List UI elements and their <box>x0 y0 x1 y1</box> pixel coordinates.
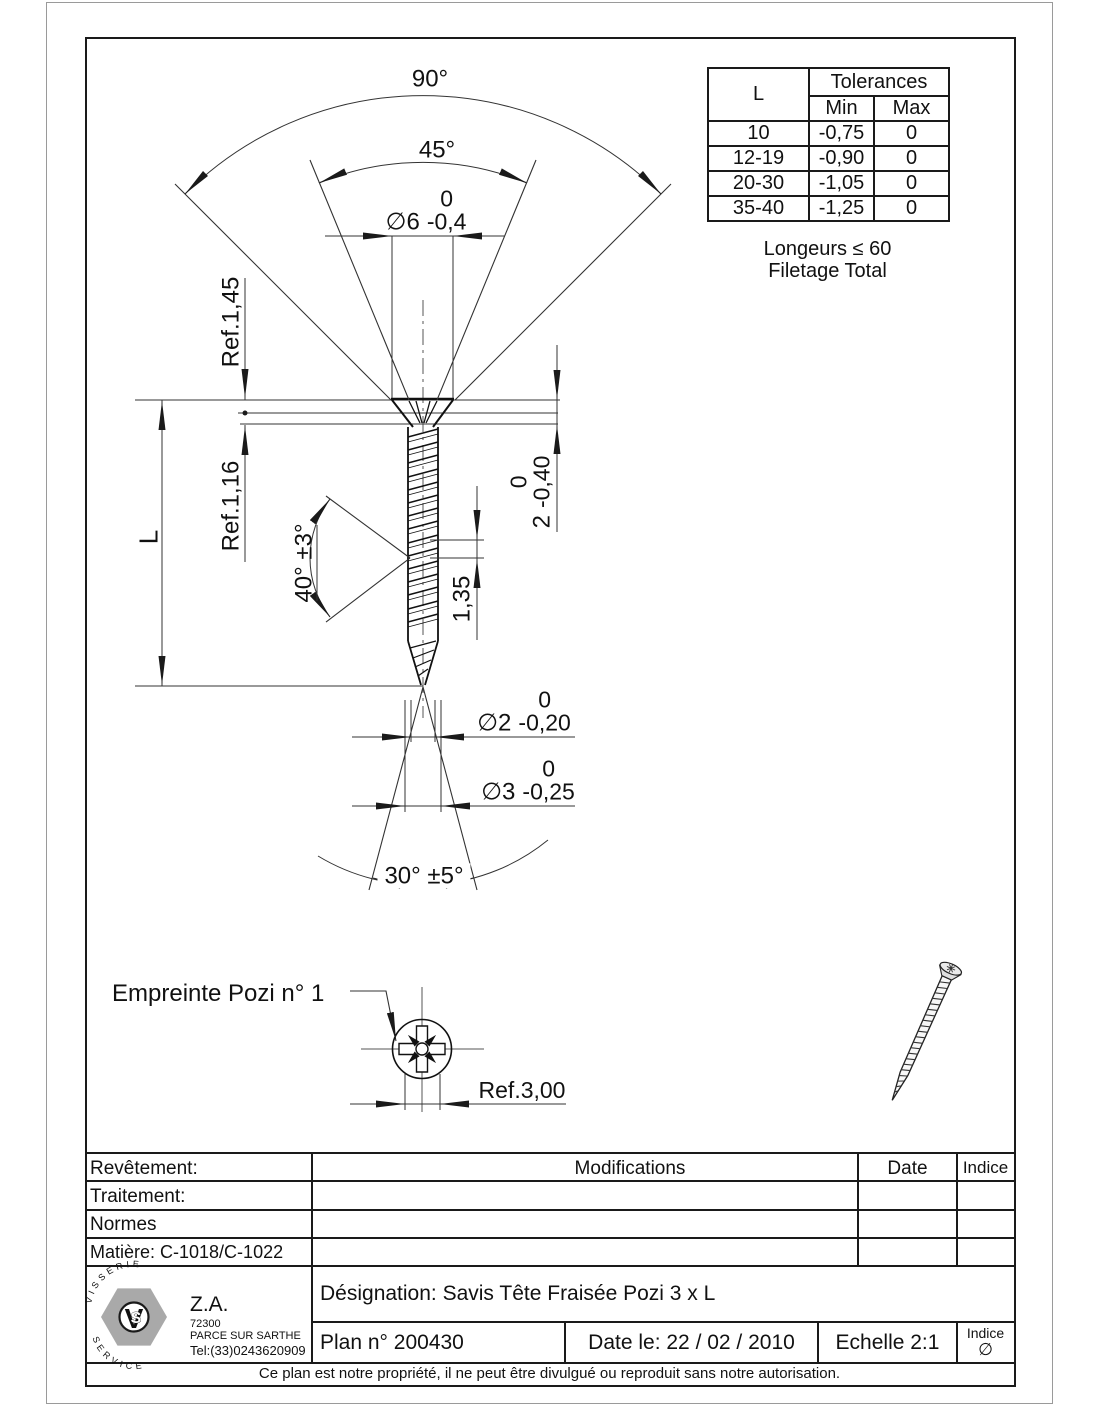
table-row: 20-30 -1,05 0 <box>708 171 949 196</box>
tol-upper: 0 <box>542 758 555 781</box>
field-indice-value: ∅ <box>957 1340 1014 1360</box>
field-designation: Désignation: Savis Tête Fraisée Pozi 3 x… <box>320 1282 715 1306</box>
tolerance-table-header-max: Max <box>874 96 949 121</box>
tol-upper: 0 <box>440 188 453 211</box>
field-date: Date le: 22 / 02 / 2010 <box>565 1331 818 1355</box>
col-header-modifications: Modifications <box>357 1158 903 1180</box>
company-za: Z.A. <box>190 1293 229 1317</box>
footer-note: Ce plan est notre propriété, il ne peut … <box>85 1365 1014 1382</box>
table-row: 12-19 -0,90 0 <box>708 146 949 171</box>
cell-max: 0 <box>874 146 949 171</box>
cell-l-range: 35-40 <box>708 196 809 221</box>
tolerance-note-line2: Filetage Total <box>707 260 948 282</box>
field-echelle: Echelle 2:1 <box>818 1331 957 1355</box>
dim-angle-45: 45° <box>419 137 455 162</box>
dim-dia3: ∅3 0 -0,25 <box>481 758 575 805</box>
dim-tip-angle: 30° ±5° <box>377 863 470 888</box>
engineering-drawing-page: { "drawing": { "dims": { "angle90": "90°… <box>0 0 1100 1422</box>
table-row: 10 -0,75 0 <box>708 121 949 146</box>
cell-max: 0 <box>874 121 949 146</box>
dim-pitch: 1,35 <box>449 576 474 623</box>
field-indice-label: Indice <box>957 1325 1014 1341</box>
tol-lower: -0,40 <box>531 456 554 508</box>
tol-lower: -0,25 <box>522 781 574 804</box>
cell-min: -1,05 <box>809 171 874 196</box>
field-revetement: Revêtement: <box>90 1158 198 1180</box>
dim-ref-145: Ref.1,45 <box>218 277 243 368</box>
cell-min: -1,25 <box>809 196 874 221</box>
tolerance-table-header-min: Min <box>809 96 874 121</box>
dia-symbol: ∅6 <box>386 209 420 234</box>
dim-dia6: ∅6 0 -0,4 <box>386 188 467 235</box>
dim-head-depth: 2 0 -0,40 <box>508 456 555 529</box>
tol-lower: -0,20 <box>518 712 570 735</box>
field-matiere: Matière: C-1018/C-1022 <box>90 1242 283 1263</box>
company-city: PARCE SUR SARTHE <box>190 1330 301 1342</box>
dim-dia2: ∅2 0 -0,20 <box>477 689 571 736</box>
tolerance-note: Longeurs ≤ 60 Filetage Total <box>707 238 948 283</box>
dia-symbol: ∅2 <box>477 710 511 735</box>
col-header-indice: Indice <box>957 1158 1014 1178</box>
cell-min: -0,75 <box>809 121 874 146</box>
cell-max: 0 <box>874 171 949 196</box>
table-row: 35-40 -1,25 0 <box>708 196 949 221</box>
dia-symbol: ∅3 <box>481 779 515 804</box>
field-plan-number: Plan n° 200430 <box>320 1331 464 1355</box>
dim-angle-90: 90° <box>412 66 448 91</box>
dim-thread-angle: 40° ±3° <box>291 523 316 602</box>
cell-l-range: 20-30 <box>708 171 809 196</box>
col-header-date: Date <box>858 1158 957 1180</box>
field-normes: Normes <box>90 1214 157 1236</box>
tol-lower: -0,4 <box>427 211 467 234</box>
tolerance-table: L Tolerances Min Max 10 -0,75 0 12-19 -0… <box>707 67 950 222</box>
cell-l-range: 12-19 <box>708 146 809 171</box>
tolerance-table-header-l: L <box>708 68 809 121</box>
cell-max: 0 <box>874 196 949 221</box>
dim-length-l: L <box>135 530 162 544</box>
cell-min: -0,90 <box>809 146 874 171</box>
depth-value: 2 <box>529 515 554 528</box>
recess-callout: Empreinte Pozi n° 1 <box>112 981 324 1006</box>
dim-ref-116: Ref.1,16 <box>218 461 243 552</box>
cell-l-range: 10 <box>708 121 809 146</box>
tol-upper: 0 <box>508 475 531 488</box>
tol-upper: 0 <box>538 689 551 712</box>
company-tel: Tel:(33)0243620909 <box>190 1343 306 1358</box>
tolerance-note-line1: Longeurs ≤ 60 <box>707 238 948 260</box>
tolerance-table-header-tolerances: Tolerances <box>809 68 949 96</box>
field-traitement: Traitement: <box>90 1186 185 1208</box>
company-zip: 72300 <box>190 1318 221 1330</box>
dim-recess-ref: Ref.3,00 <box>479 1078 566 1102</box>
